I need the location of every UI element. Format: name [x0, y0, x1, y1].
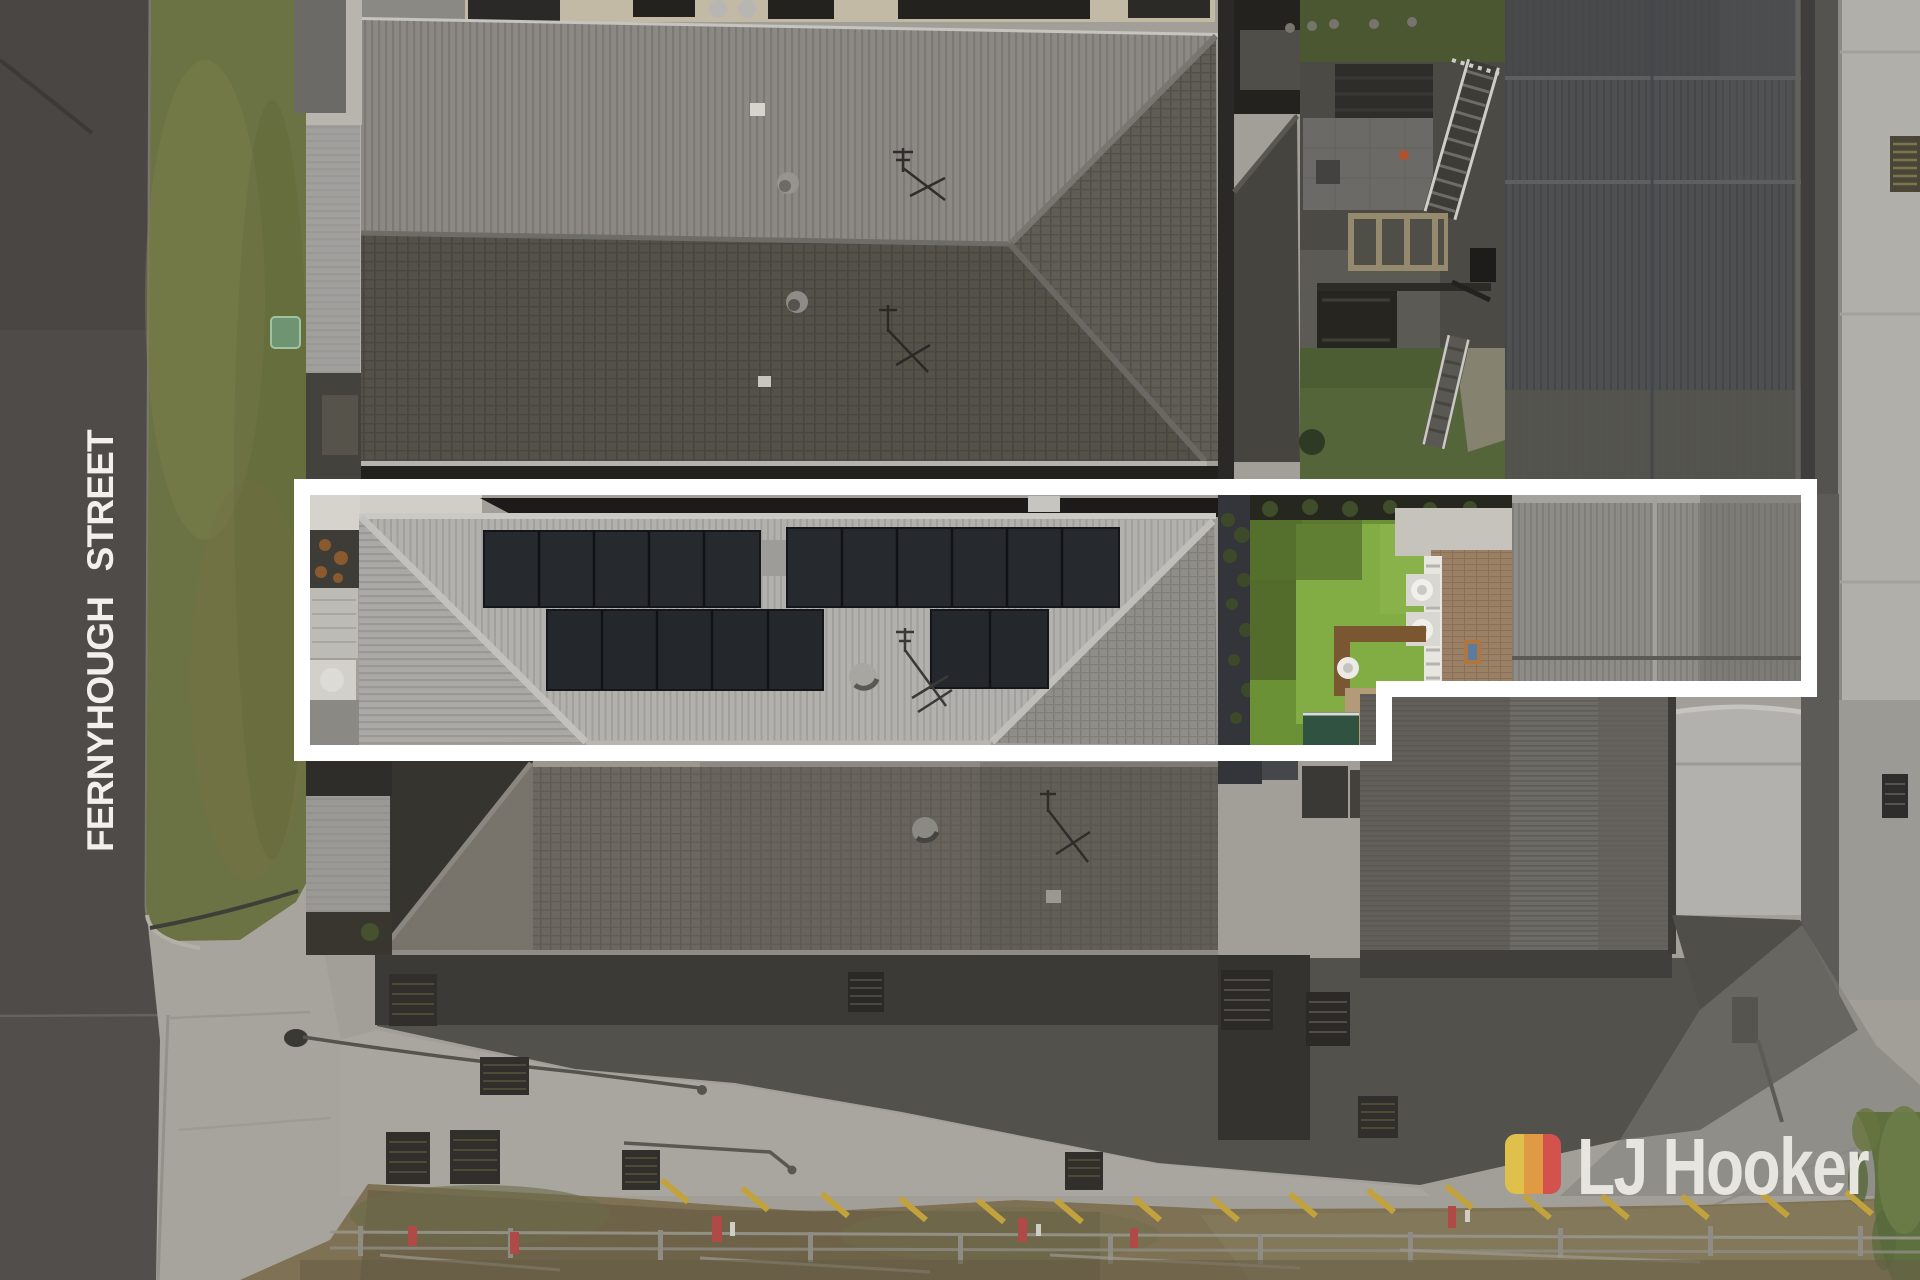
svg-text:FERNYHOUGH STREET: FERNYHOUGH STREET	[80, 429, 121, 852]
svg-text:LJ Hooker: LJ Hooker	[1577, 1123, 1869, 1212]
